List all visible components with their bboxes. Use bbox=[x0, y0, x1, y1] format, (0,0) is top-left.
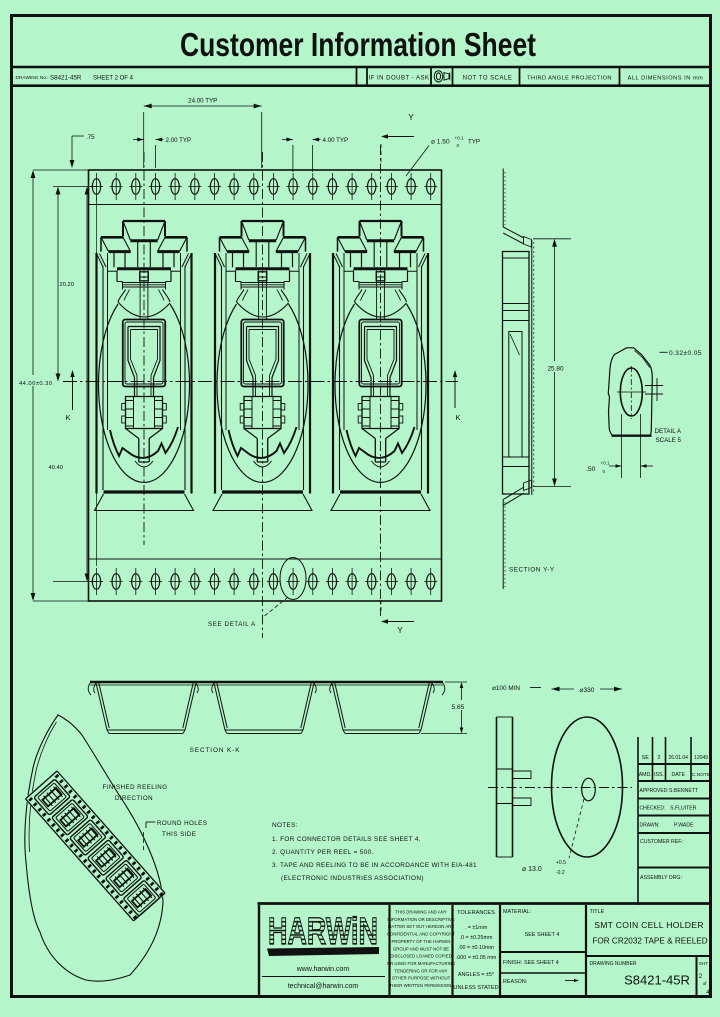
svg-text:ROUND HOLES: ROUND HOLES bbox=[157, 820, 207, 827]
svg-text:INFORMATION OR DESCRIPTIVE: INFORMATION OR DESCRIPTIVE bbox=[387, 917, 454, 922]
svg-text:FINISH:: FINISH: bbox=[503, 960, 522, 966]
svg-text:K: K bbox=[65, 413, 70, 422]
svg-text:3. TAPE AND REELING TO BE IN: 3. TAPE AND REELING TO BE IN ACCORDANCE … bbox=[272, 862, 477, 869]
svg-text:SECTION Y-Y: SECTION Y-Y bbox=[509, 567, 555, 574]
svg-text:20.20: 20.20 bbox=[60, 282, 75, 288]
svg-text:Y: Y bbox=[397, 626, 403, 635]
svg-text:CONFIDENTIAL AND COPYRIGHT: CONFIDENTIAL AND COPYRIGHT bbox=[387, 932, 455, 937]
svg-text:⌀ 1.50: ⌀ 1.50 bbox=[431, 139, 450, 146]
svg-text:+0.5: +0.5 bbox=[556, 860, 566, 866]
svg-text:C.NOTE: C.NOTE bbox=[692, 772, 710, 778]
svg-text:AMD.: AMD. bbox=[639, 772, 652, 778]
svg-text:.00 = ±0.10mm: .00 = ±0.10mm bbox=[458, 945, 495, 951]
svg-text:FOR CR2032 TAPE & REELED: FOR CR2032 TAPE & REELED bbox=[592, 937, 707, 946]
svg-text:+0.1: +0.1 bbox=[601, 461, 611, 466]
svg-text:SEE SHEET 4: SEE SHEET 4 bbox=[524, 960, 559, 966]
svg-text:Y: Y bbox=[408, 113, 414, 122]
svg-text:OTHER PURPOSE WITHOUT: OTHER PURPOSE WITHOUT bbox=[392, 976, 451, 981]
svg-text:TITLE: TITLE bbox=[590, 909, 605, 915]
svg-text:SHT: SHT bbox=[699, 961, 708, 966]
svg-text:IF IN DOUBT - ASK: IF IN DOUBT - ASK bbox=[368, 76, 429, 82]
svg-text:PROPERTY OF THE HARWIN: PROPERTY OF THE HARWIN bbox=[392, 939, 451, 944]
svg-text:CUSTOMER REF.:: CUSTOMER REF.: bbox=[640, 839, 684, 845]
svg-text:DATE: DATE bbox=[671, 772, 685, 778]
svg-text:GROUP AND MUST NOT BE: GROUP AND MUST NOT BE bbox=[393, 946, 449, 951]
svg-text:DRAWING NUMBER: DRAWING NUMBER bbox=[590, 961, 637, 967]
svg-text:-0.2: -0.2 bbox=[556, 870, 565, 876]
svg-text:26.01.04: 26.01.04 bbox=[668, 755, 688, 761]
svg-text:SECTION K-K: SECTION K-K bbox=[190, 747, 241, 754]
svg-text:SMT COIN CELL HOLDER: SMT COIN CELL HOLDER bbox=[594, 920, 704, 930]
svg-text:. = ±1mm: . = ±1mm bbox=[465, 925, 488, 931]
svg-text:0: 0 bbox=[457, 143, 460, 148]
svg-text:HARWiN: HARWiN bbox=[268, 911, 378, 953]
svg-text:2. QUANTITY PER REEL = 500.: 2. QUANTITY PER REEL = 500. bbox=[272, 849, 374, 856]
svg-text:THIS DRAWING AND ANY: THIS DRAWING AND ANY bbox=[395, 910, 447, 915]
svg-text:FINISHED REELING: FINISHED REELING bbox=[103, 784, 168, 791]
svg-text:4: 4 bbox=[706, 989, 710, 996]
svg-text:0: 0 bbox=[603, 469, 606, 474]
svg-text:⌀ 13.0: ⌀ 13.0 bbox=[522, 866, 542, 873]
svg-text:K: K bbox=[455, 413, 460, 422]
svg-text:ALL DIMENSIONS IN mm: ALL DIMENSIONS IN mm bbox=[628, 76, 704, 82]
svg-text:DRAWING No.:: DRAWING No.: bbox=[16, 75, 49, 81]
svg-text:S.BENNETT: S.BENNETT bbox=[669, 788, 699, 794]
svg-text:44.00±0.30: 44.00±0.30 bbox=[19, 381, 52, 387]
svg-text:OR USED FOR MANUFACTURING: OR USED FOR MANUFACTURING bbox=[387, 961, 456, 966]
svg-text:Customer Information Sheet: Customer Information Sheet bbox=[180, 26, 536, 63]
svg-text:⌀330: ⌀330 bbox=[580, 687, 595, 694]
svg-text:NOTES:: NOTES: bbox=[272, 822, 298, 829]
svg-text:S8421-45R: S8421-45R bbox=[50, 75, 82, 82]
svg-text:⌀100 MIN: ⌀100 MIN bbox=[492, 685, 520, 692]
svg-text:THIRD ANGLE PROJECTION: THIRD ANGLE PROJECTION bbox=[527, 76, 612, 82]
svg-text:DETAIL A: DETAIL A bbox=[655, 428, 682, 435]
svg-text:2: 2 bbox=[658, 755, 661, 761]
svg-text:SE: SE bbox=[642, 755, 650, 761]
svg-text:NOT TO SCALE: NOT TO SCALE bbox=[463, 76, 513, 82]
svg-text:25.80: 25.80 bbox=[548, 366, 564, 373]
svg-text:ASSEMBLY DRG:: ASSEMBLY DRG: bbox=[640, 875, 682, 881]
svg-text:SCALE 5: SCALE 5 bbox=[656, 437, 682, 444]
svg-text:technical@harwin.com: technical@harwin.com bbox=[288, 983, 359, 990]
svg-text:S8421-45R: S8421-45R bbox=[624, 973, 690, 988]
svg-text:UNLESS STATED: UNLESS STATED bbox=[453, 985, 498, 991]
svg-text:.000 = ±0.05 mm: .000 = ±0.05 mm bbox=[456, 955, 497, 961]
svg-text:SHEET 2 OF 4: SHEET 2 OF 4 bbox=[93, 76, 134, 82]
svg-text:TYP: TYP bbox=[468, 139, 480, 146]
svg-text:.0 = ±0.25mm: .0 = ±0.25mm bbox=[459, 935, 493, 941]
svg-text:.75: .75 bbox=[86, 134, 95, 141]
svg-text:0.32±0.05: 0.32±0.05 bbox=[669, 350, 702, 357]
svg-text:ISS.: ISS. bbox=[654, 772, 664, 778]
svg-text:S.FLUITER: S.FLUITER bbox=[670, 806, 697, 812]
svg-text:40.40: 40.40 bbox=[49, 465, 64, 471]
svg-text:DIRECTION: DIRECTION bbox=[115, 795, 153, 802]
svg-text:DISCLOSED LOANED COPIED: DISCLOSED LOANED COPIED bbox=[390, 954, 451, 959]
svg-text:24.00 TYP: 24.00 TYP bbox=[188, 98, 217, 105]
svg-text:TENDERING OR FOR ANY: TENDERING OR FOR ANY bbox=[395, 968, 448, 973]
svg-text:DRAWN:: DRAWN: bbox=[640, 823, 660, 829]
svg-text:4.00 TYP: 4.00 TYP bbox=[323, 137, 349, 144]
svg-text:APPROVED:: APPROVED: bbox=[640, 788, 669, 794]
svg-text:TOLERANCES: TOLERANCES bbox=[457, 910, 495, 916]
svg-text:SEE SHEET 4: SEE SHEET 4 bbox=[525, 932, 560, 938]
svg-text:.50: .50 bbox=[586, 466, 596, 473]
svg-text:12049: 12049 bbox=[694, 755, 708, 761]
svg-text:P.WADE: P.WADE bbox=[674, 823, 694, 829]
svg-text:+0.1: +0.1 bbox=[455, 136, 465, 141]
svg-text:REASON:: REASON: bbox=[503, 979, 527, 985]
svg-text:1. FOR CONNECTOR DETAILS SEE: 1. FOR CONNECTOR DETAILS SEE SHEET 4. bbox=[272, 836, 421, 843]
svg-text:2: 2 bbox=[699, 973, 703, 980]
svg-text:www.harwin.com: www.harwin.com bbox=[296, 966, 350, 973]
svg-text:ANGLES = ±5°: ANGLES = ±5° bbox=[458, 972, 494, 978]
svg-text:CHECKED:: CHECKED: bbox=[640, 806, 666, 812]
svg-text:MATERIAL:: MATERIAL: bbox=[503, 909, 531, 915]
svg-text:MATTER SET OUT HEREON ARE: MATTER SET OUT HEREON ARE bbox=[388, 924, 455, 929]
svg-text:THEIR WRITTEN PERMISSION.: THEIR WRITTEN PERMISSION. bbox=[389, 983, 452, 988]
svg-text:THIS SIDE: THIS SIDE bbox=[162, 831, 196, 838]
svg-text:(ELECTRONIC INDUSTRIES ASSOCIA: (ELECTRONIC INDUSTRIES ASSOCIATION) bbox=[281, 875, 424, 882]
svg-text:SEE DETAIL A: SEE DETAIL A bbox=[208, 621, 256, 628]
svg-text:5.65: 5.65 bbox=[452, 704, 465, 711]
svg-text:2.00 TYP: 2.00 TYP bbox=[166, 137, 192, 144]
